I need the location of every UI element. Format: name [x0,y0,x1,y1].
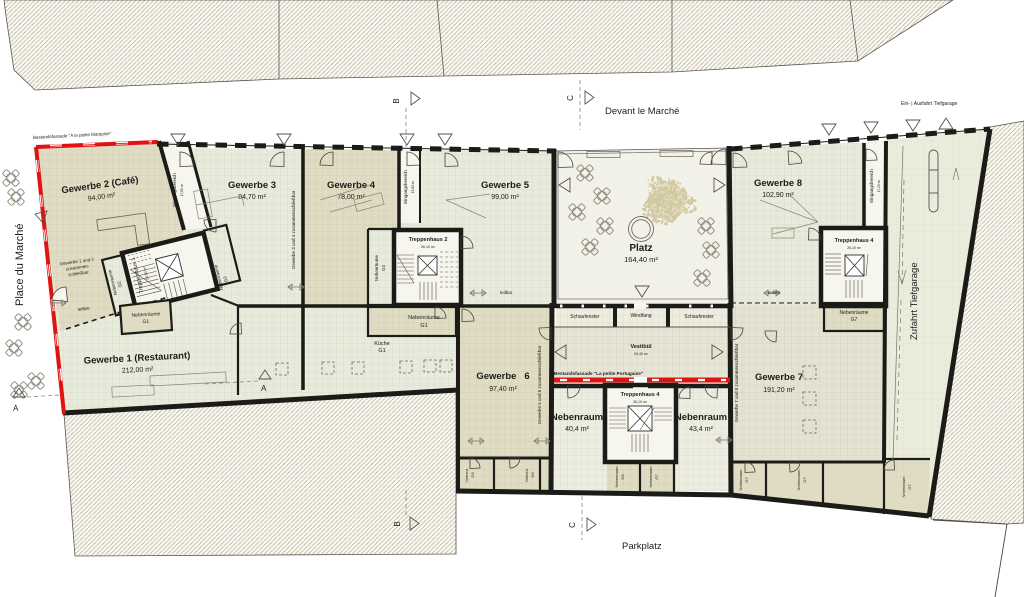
svg-text:Gewerbe 6: Gewerbe 6 [476,371,529,382]
svg-text:Nebenraum: Nebenraum [614,466,619,488]
svg-text:teilbar: teilbar [500,290,513,295]
svg-text:C: C [568,522,577,528]
svg-text:191,20 m²: 191,20 m² [763,387,795,394]
svg-text:164,40 m²: 164,40 m² [624,255,658,264]
svg-text:Gewerbe 8: Gewerbe 8 [754,178,802,189]
svg-text:Devant le Marché: Devant le Marché [605,106,679,117]
svg-text:Bestandsfassade "La petite Por: Bestandsfassade "La petite Portugaise" [554,371,643,376]
svg-text:Gewerbe 5 und 6 zusammenschlie: Gewerbe 5 und 6 zusammenschließbar [537,345,542,424]
svg-text:Nebenr.: Nebenr. [464,468,469,482]
svg-text:26,10 m²: 26,10 m² [847,246,862,250]
svg-text:Vestibül: Vestibül [630,344,652,350]
svg-text:Schaufenster: Schaufenster [570,314,600,320]
svg-text:G7: G7 [744,477,749,483]
svg-text:13,80 m²: 13,80 m² [411,181,415,194]
svg-text:G1: G1 [142,319,149,325]
svg-text:G1: G1 [420,323,427,329]
svg-text:Eingangsbereich: Eingangsbereich [172,173,177,207]
svg-text:Gewerbe 3: Gewerbe 3 [228,180,276,191]
svg-text:C: C [566,95,575,101]
svg-text:40,4 m²: 40,4 m² [565,426,589,433]
svg-text:G7: G7 [654,474,659,480]
svg-text:G1: G1 [378,348,385,354]
svg-text:Nebenraum: Nebenraum [675,412,727,423]
svg-text:Eingangsbereich: Eingangsbereich [403,170,408,204]
svg-text:B: B [392,98,401,103]
svg-text:teilber: teilber [768,290,781,295]
svg-text:G6: G6 [530,472,535,478]
svg-text:Gewerbe 7 und 8 zusammenschlie: Gewerbe 7 und 8 zusammenschließbar [734,343,739,422]
svg-text:Ein- | Ausfahrt Tiefgarage: Ein- | Ausfahrt Tiefgarage [901,101,958,107]
svg-text:Nebenraum: Nebenraum [901,476,906,498]
svg-text:26,10 m²: 26,10 m² [421,245,436,249]
svg-text:Schaufenster: Schaufenster [684,314,714,320]
svg-text:Windfang: Windfang [630,313,651,319]
svg-text:Nebenräume: Nebenräume [840,310,869,316]
svg-text:17,20 m²: 17,20 m² [877,180,881,193]
svg-text:Place du Marché: Place du Marché [14,223,26,306]
svg-text:Gewerbe 5: Gewerbe 5 [481,180,530,191]
svg-text:Treppenhaus 4: Treppenhaus 4 [621,392,661,398]
svg-text:Nebenräume: Nebenräume [408,315,440,321]
svg-text:Nebenraum: Nebenraum [648,466,653,488]
svg-text:A: A [261,384,267,393]
svg-text:G7: G7 [851,317,858,323]
svg-text:Nebenraum: Nebenraum [738,469,743,491]
svg-text:Nebenräume: Nebenräume [374,254,379,281]
svg-text:Parkplatz: Parkplatz [622,541,662,552]
svg-text:Nebenraum: Nebenraum [796,469,801,491]
svg-text:G4: G4 [381,265,386,272]
svg-text:99,00 m²: 99,00 m² [491,194,519,201]
svg-text:A: A [13,404,19,413]
svg-text:B: B [393,521,402,526]
svg-text:G6: G6 [470,472,475,478]
svg-text:Treppenhaus 2: Treppenhaus 2 [409,237,448,243]
svg-text:Gewerbe 7: Gewerbe 7 [755,372,803,383]
svg-text:Eingangsbereich: Eingangsbereich [869,169,874,203]
svg-text:G7: G7 [907,484,912,490]
svg-text:102,90 m²: 102,90 m² [762,192,794,199]
svg-text:G6: G6 [620,474,625,480]
svg-text:26,10 m²: 26,10 m² [633,400,648,404]
svg-text:Zufahrt Tiefgarage: Zufahrt Tiefgarage [909,262,920,340]
svg-text:43,4 m²: 43,4 m² [689,426,713,433]
svg-text:G7: G7 [802,477,807,483]
svg-text:93,40 m²: 93,40 m² [634,352,649,356]
svg-text:Nebenraum: Nebenraum [551,412,603,423]
svg-text:Gewerbe 3 und 4 zusammenschlie: Gewerbe 3 und 4 zusammenschließbar [291,190,296,269]
svg-text:Küche: Küche [374,341,390,347]
svg-text:17,80 m²: 17,80 m² [180,184,184,197]
svg-text:97,40 m²: 97,40 m² [489,386,517,393]
svg-text:78,00 m²: 78,00 m² [337,194,365,201]
svg-text:Treppenhaus 4: Treppenhaus 4 [835,238,875,244]
svg-text:Platz: Platz [629,243,652,254]
svg-text:Nebenr.: Nebenr. [524,468,529,482]
